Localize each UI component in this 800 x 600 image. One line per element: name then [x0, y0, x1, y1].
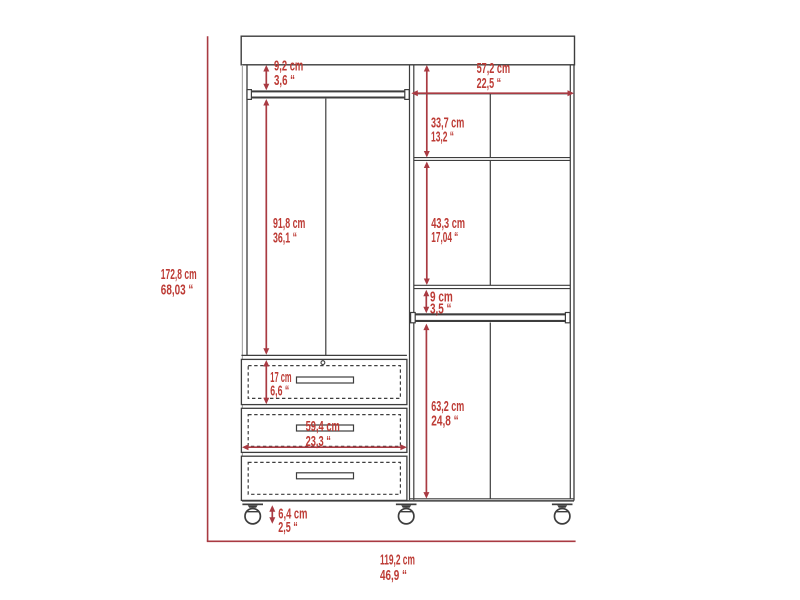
- svg-text:24,8 “: 24,8 “: [431, 414, 458, 430]
- svg-text:3,6 “: 3,6 “: [274, 73, 295, 89]
- svg-text:57,2 cm: 57,2 cm: [477, 61, 511, 77]
- svg-text:46,9 “: 46,9 “: [380, 568, 407, 584]
- svg-text:22,5 “: 22,5 “: [477, 76, 502, 92]
- svg-text:59,4 cm: 59,4 cm: [306, 419, 340, 435]
- svg-text:13,2 “: 13,2 “: [431, 130, 454, 146]
- svg-text:2,5 “: 2,5 “: [278, 520, 298, 536]
- svg-text:68,03 “: 68,03 “: [161, 282, 194, 298]
- svg-text:23,3 “: 23,3 “: [306, 434, 331, 450]
- svg-text:17,04 “: 17,04 “: [431, 230, 458, 246]
- svg-text:36,1 “: 36,1 “: [273, 231, 297, 247]
- svg-text:6,6 “: 6,6 “: [270, 383, 289, 399]
- svg-text:119,2 cm: 119,2 cm: [380, 553, 415, 569]
- svg-text:172,8 cm: 172,8 cm: [161, 267, 197, 283]
- svg-text:3,5 “: 3,5 “: [430, 301, 452, 317]
